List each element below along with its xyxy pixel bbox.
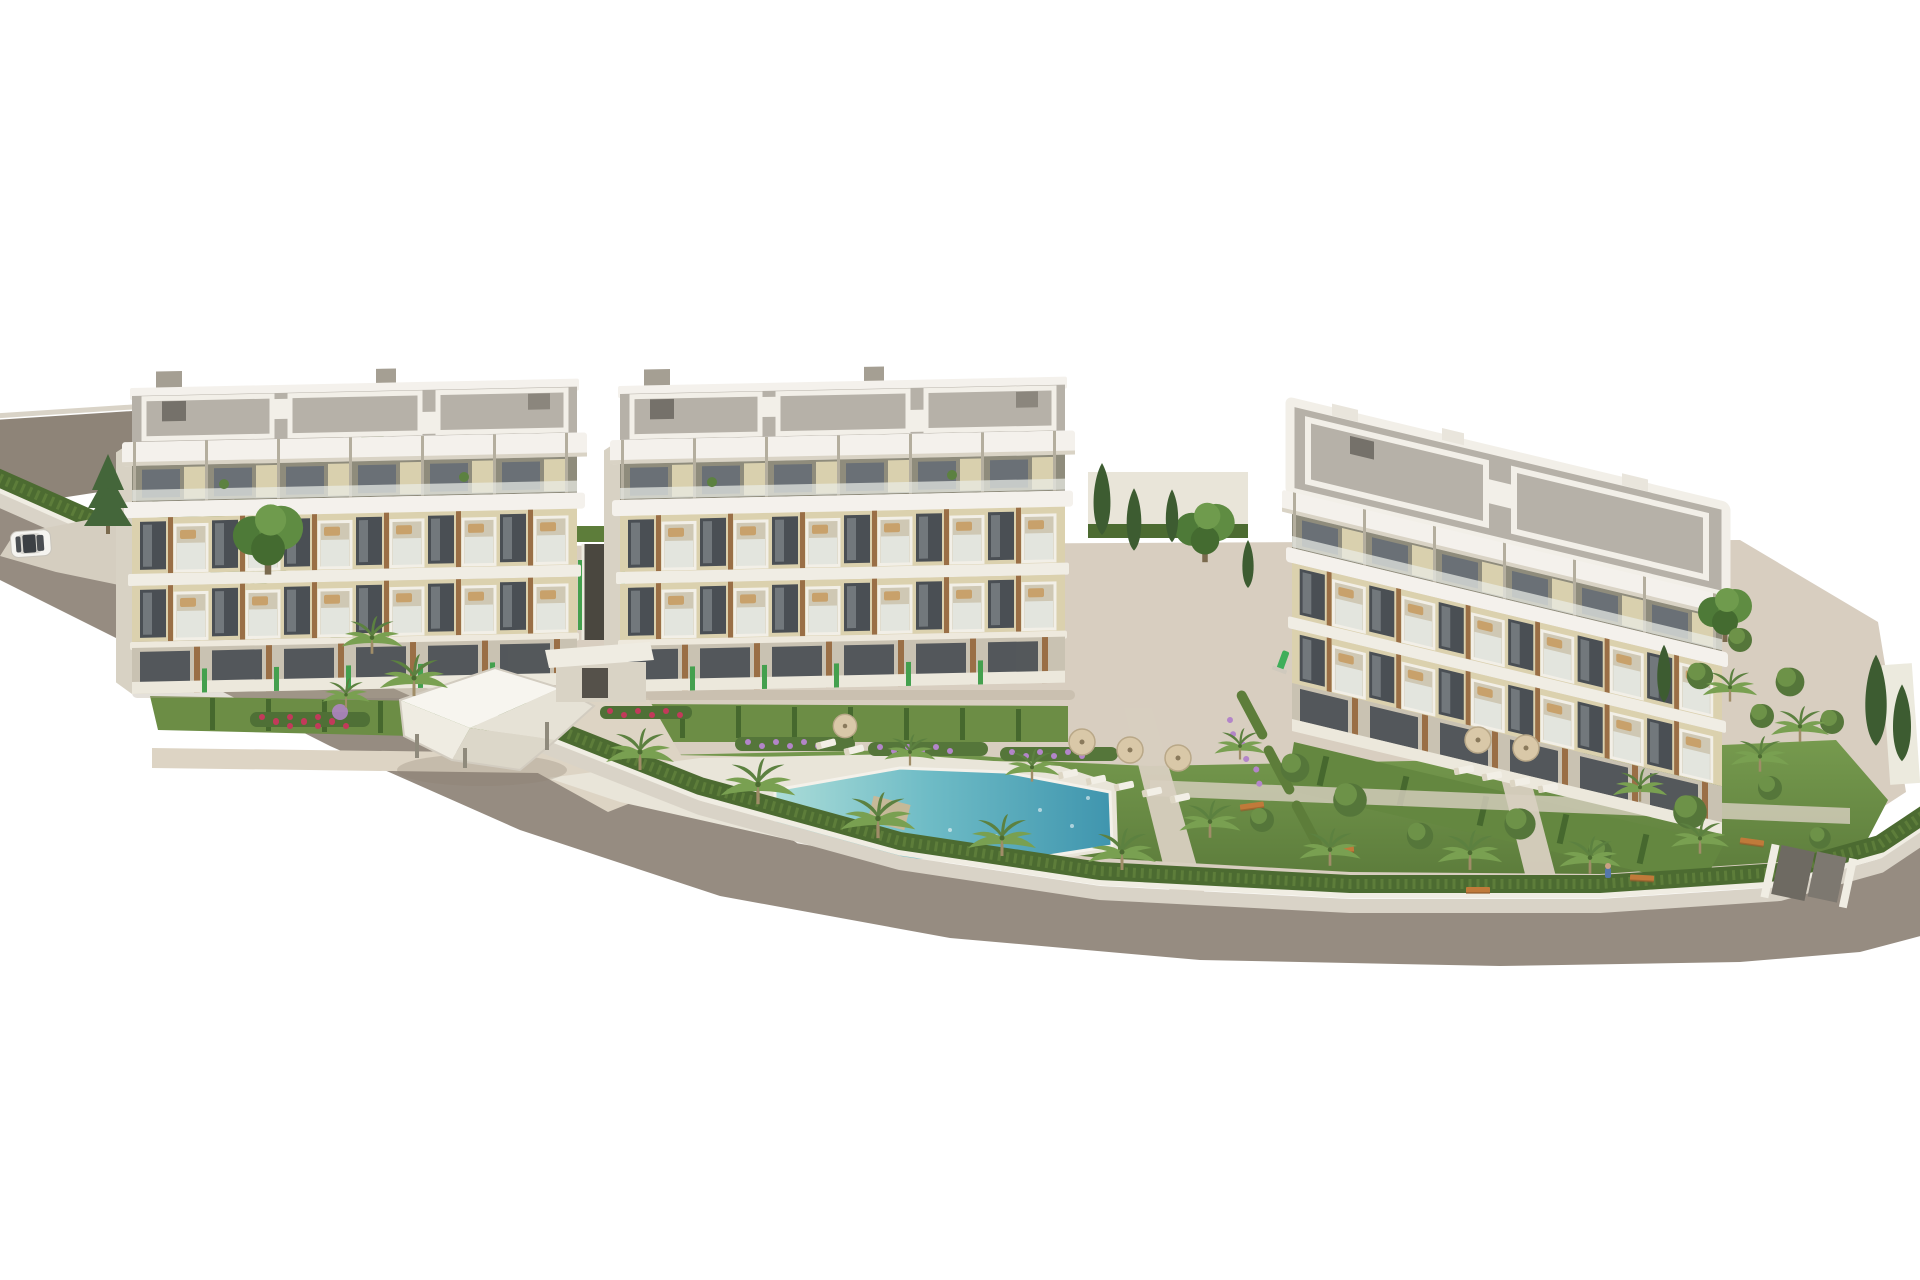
person [1605, 863, 1611, 878]
parasol [833, 714, 856, 737]
parasol [1513, 735, 1539, 761]
bench [1630, 874, 1654, 882]
shrub [1728, 628, 1752, 652]
shrub [1758, 776, 1782, 800]
parasol [1069, 729, 1095, 755]
entry-pavilion [545, 642, 654, 702]
shrub [1250, 808, 1274, 832]
building-shadow [620, 690, 1075, 700]
bench [1466, 887, 1490, 894]
shrub [1333, 783, 1367, 817]
shrub [1407, 823, 1433, 849]
white-car [10, 529, 52, 558]
shrub [1820, 710, 1844, 734]
shrub [1776, 668, 1805, 697]
parasol [1465, 727, 1491, 753]
shrub [1809, 827, 1831, 849]
parasol [1117, 737, 1143, 763]
shrub [1504, 808, 1535, 839]
architectural-render [0, 0, 1920, 1280]
shrub [1750, 704, 1774, 728]
parasol [1165, 745, 1191, 771]
scene-svg [0, 0, 1920, 1280]
shrub [1281, 754, 1310, 783]
building-2 [604, 360, 1075, 692]
shrub [1687, 663, 1713, 689]
